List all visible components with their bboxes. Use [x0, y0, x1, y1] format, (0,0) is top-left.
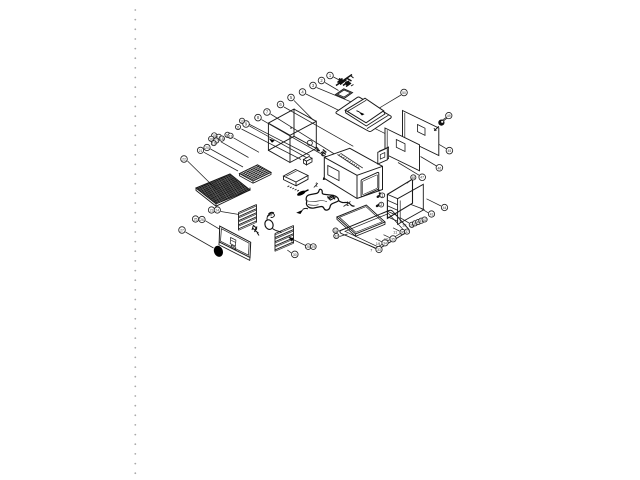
svg-text:25: 25 [194, 218, 198, 222]
svg-text:19: 19 [376, 241, 381, 246]
svg-text:33: 33 [377, 248, 381, 252]
svg-text:35: 35 [391, 237, 395, 241]
svg-text:24: 24 [215, 209, 219, 213]
svg-text:26: 26 [200, 218, 204, 222]
svg-text:34: 34 [383, 241, 387, 245]
svg-text:46: 46 [438, 166, 442, 170]
svg-text:45: 45 [448, 149, 452, 153]
svg-text:18: 18 [402, 223, 407, 228]
svg-text:22: 22 [182, 158, 186, 162]
svg-text:23: 23 [210, 209, 214, 213]
svg-text:32: 32 [334, 235, 338, 239]
svg-text:10: 10 [240, 119, 244, 123]
svg-text:30: 30 [293, 253, 297, 257]
svg-text:44: 44 [443, 206, 447, 210]
svg-text:29: 29 [311, 245, 315, 249]
svg-text:19: 19 [212, 142, 216, 146]
svg-text:11: 11 [236, 126, 240, 130]
svg-text:28: 28 [306, 245, 310, 249]
svg-text:48: 48 [411, 176, 415, 180]
svg-text:49: 49 [447, 114, 451, 118]
svg-text:47: 47 [420, 176, 424, 180]
svg-text:10: 10 [384, 237, 389, 242]
svg-text:37: 37 [405, 230, 409, 234]
svg-text:18: 18 [220, 137, 224, 141]
svg-text:13: 13 [229, 134, 233, 138]
svg-text:42: 42 [423, 218, 427, 222]
svg-text:43: 43 [430, 213, 434, 217]
svg-text:36: 36 [401, 231, 405, 235]
svg-text:20: 20 [205, 146, 209, 150]
svg-text:27: 27 [180, 229, 184, 233]
svg-text:50: 50 [402, 91, 406, 95]
svg-text:31: 31 [334, 229, 338, 233]
svg-text:21: 21 [199, 149, 203, 153]
